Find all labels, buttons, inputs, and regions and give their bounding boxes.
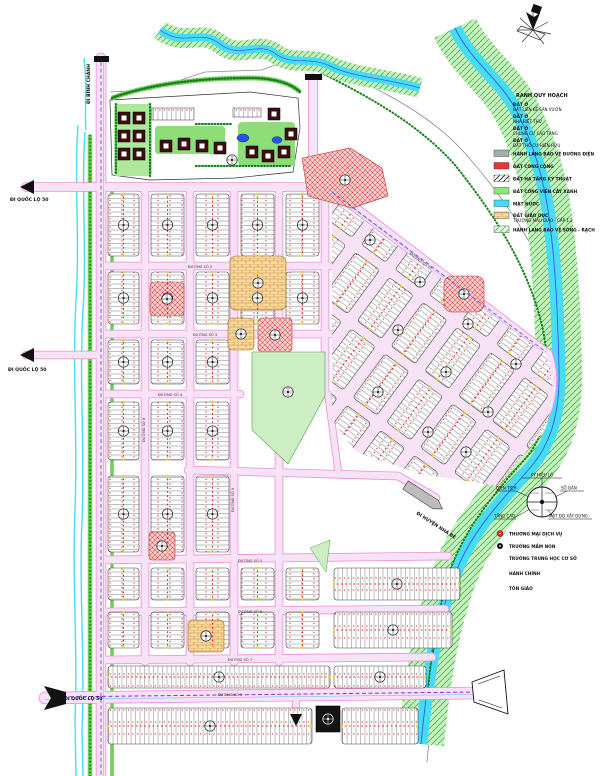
spine-tick bbox=[212, 401, 214, 404]
road-name: ĐƯỜNG SỐ 6 bbox=[238, 609, 263, 614]
spine-tick bbox=[257, 193, 259, 196]
apartment-building bbox=[160, 140, 172, 152]
spine-tick bbox=[107, 676, 109, 679]
lot-circle-symbol bbox=[207, 426, 217, 436]
lot-circle-symbol bbox=[253, 278, 263, 288]
spine-tick bbox=[516, 198, 519, 201]
park-parcel bbox=[252, 352, 325, 464]
spine-tick bbox=[302, 254, 304, 257]
lot-circle-symbol bbox=[162, 509, 172, 519]
spine-tick bbox=[167, 322, 169, 325]
lot-circle-symbol bbox=[207, 357, 217, 367]
legend-point-label: HÀNH CHÍNH bbox=[509, 569, 541, 577]
legend-swatch-education bbox=[494, 212, 509, 219]
lot-circle-symbol bbox=[207, 293, 217, 303]
lot-circle-symbol bbox=[415, 277, 425, 287]
parcel-spine bbox=[582, 286, 600, 325]
lot-circle-symbol bbox=[162, 220, 172, 230]
apartment-complex-siteplan bbox=[110, 78, 300, 180]
spine-tick bbox=[302, 322, 304, 325]
lot-circle-symbol bbox=[483, 407, 493, 417]
lot-circle-symbol bbox=[463, 319, 473, 329]
lot-symbol-label-bottom-left: TẦNG CAO bbox=[493, 514, 515, 519]
lot-circle-symbol bbox=[227, 155, 237, 165]
spine-tick bbox=[167, 382, 169, 385]
spine-tick bbox=[212, 550, 214, 553]
apartment-building bbox=[214, 142, 226, 154]
spine-tick bbox=[302, 567, 304, 570]
road-name: ĐƯỜNG SỐ 8 bbox=[141, 417, 146, 442]
spine-tick bbox=[476, 182, 479, 185]
spine-tick bbox=[302, 598, 304, 601]
spine-tick bbox=[410, 200, 413, 203]
spine-tick bbox=[257, 271, 259, 274]
spine-tick bbox=[374, 107, 377, 110]
spine-tick bbox=[581, 181, 584, 184]
planning-map-canvas: ĐI QUỐC LỘ 50 ĐI QUỐC LỘ 50 ĐI QUỐC LỘ 5… bbox=[0, 0, 600, 776]
apartment-building bbox=[133, 148, 145, 160]
parcel-spine bbox=[413, 161, 442, 200]
spine-tick bbox=[450, 629, 452, 632]
spine-tick bbox=[123, 550, 125, 553]
master-plan-drawing: ĐI QUỐC LỘ 50 ĐI QUỐC LỘ 50 ĐI QUỐC LỘ 5… bbox=[0, 0, 600, 776]
legend-res-sub: ĐẤT LIÊN KẾ SÂN VƯỜN bbox=[513, 106, 562, 112]
road-surface bbox=[100, 609, 445, 612]
spine-tick bbox=[123, 646, 125, 649]
parcel-block bbox=[108, 612, 139, 648]
legend-point-label: THƯƠNG MẠI DỊCH VỤ bbox=[509, 532, 563, 538]
spine-tick bbox=[123, 271, 125, 274]
lot-circle-symbol bbox=[118, 426, 128, 436]
spine-tick bbox=[167, 567, 169, 570]
spine-tick bbox=[167, 550, 169, 553]
spine-tick bbox=[480, 106, 483, 109]
spine-tick bbox=[509, 207, 512, 210]
lot-circle-symbol bbox=[441, 367, 451, 377]
parcel-block bbox=[286, 612, 319, 648]
legend-point-label: TRƯỜNG MẦM NON bbox=[509, 541, 556, 550]
lot-circle-symbol bbox=[365, 235, 375, 245]
spine-tick bbox=[341, 725, 343, 728]
spine-tick bbox=[512, 275, 515, 278]
lot-circle-symbol bbox=[373, 387, 383, 397]
spine-tick bbox=[257, 567, 259, 570]
road-name: ĐƯỜNG SỐ 1 bbox=[218, 692, 242, 697]
road-name: ĐƯỜNG SỐ 7 bbox=[228, 657, 252, 662]
lot-symbol-label-bottom-right: MẬT ĐỘ XÂY DỰNG bbox=[549, 514, 588, 519]
lot-circle-symbol bbox=[162, 294, 172, 304]
spine-tick bbox=[446, 81, 449, 84]
legend-title: RANH QUY HOẠCH bbox=[516, 93, 568, 99]
lot-circle-symbol bbox=[461, 447, 471, 457]
lot-circle-symbol bbox=[511, 359, 521, 369]
lot-circle-symbol bbox=[207, 509, 217, 519]
spine-tick bbox=[326, 455, 329, 458]
lot-circle-symbol bbox=[393, 325, 403, 335]
spine-tick bbox=[212, 322, 214, 325]
parcel-block bbox=[400, 150, 456, 211]
spine-tick bbox=[123, 322, 125, 325]
left-road-cap bbox=[94, 56, 109, 62]
apartment-building bbox=[246, 146, 258, 158]
spine-tick bbox=[415, 123, 418, 126]
parcel-spine bbox=[447, 186, 476, 225]
lot-circle-symbol bbox=[297, 220, 307, 230]
north-road-cap bbox=[305, 74, 322, 80]
spine-tick bbox=[123, 339, 125, 342]
legend-res-sub: ĐẤT THỔ CƯ HIỆN HỮU bbox=[513, 143, 560, 148]
lot-circle-symbol bbox=[118, 357, 128, 367]
apartment-building bbox=[133, 112, 145, 124]
spine-tick bbox=[167, 475, 169, 478]
spine-tick bbox=[302, 271, 304, 274]
spine-tick bbox=[167, 401, 169, 404]
lot-circle-symbol bbox=[118, 220, 128, 230]
spine-tick bbox=[381, 98, 384, 101]
spine-tick bbox=[302, 611, 304, 614]
apartment-building bbox=[285, 128, 297, 140]
lot-symbol-label-top: KÝ HIỆU LÔ bbox=[531, 473, 553, 478]
spine-tick bbox=[333, 629, 335, 632]
parcel-block bbox=[438, 98, 494, 159]
apartment-building bbox=[118, 112, 130, 124]
lot-circle-symbol bbox=[201, 631, 211, 641]
commerce-point-icon-center bbox=[499, 533, 501, 535]
lot-circle-symbol bbox=[207, 220, 217, 230]
parcel-block bbox=[241, 612, 274, 648]
spine-tick bbox=[448, 148, 451, 151]
spine-tick bbox=[123, 382, 125, 385]
spine-tick bbox=[412, 56, 415, 59]
spine-tick bbox=[478, 250, 481, 253]
spine-tick bbox=[212, 254, 214, 257]
spine-tick bbox=[416, 725, 418, 728]
spine-tick bbox=[167, 611, 169, 614]
spine-tick bbox=[212, 567, 214, 570]
road-name: ĐƯỜNG SỐ 3 bbox=[193, 332, 217, 337]
apartment-building bbox=[118, 148, 130, 160]
spine-tick bbox=[123, 567, 125, 570]
lot-circle-symbol bbox=[118, 509, 128, 519]
spine-tick bbox=[167, 271, 169, 274]
lot-circle-symbol bbox=[297, 293, 307, 303]
spine-tick bbox=[212, 598, 214, 601]
spine-tick bbox=[123, 401, 125, 404]
apartment-building bbox=[118, 130, 130, 142]
parcel-spine bbox=[380, 136, 409, 175]
spine-tick bbox=[212, 611, 214, 614]
lot-symbol-label-right: SỐ DÂN bbox=[561, 486, 577, 491]
lot-circle-symbol bbox=[236, 329, 246, 339]
lot-circle-symbol bbox=[118, 293, 128, 303]
legend-swatch-water bbox=[494, 200, 509, 207]
apartment-building bbox=[262, 150, 274, 162]
exit-label: ĐI QUỐC LỘ 50 bbox=[10, 195, 49, 203]
legend-swatch-infrastructure bbox=[494, 175, 509, 182]
spine-tick bbox=[458, 488, 461, 491]
legend-res-sub: CHUNG CƯ CAO TẦNG bbox=[513, 131, 558, 136]
spine-tick bbox=[123, 254, 125, 257]
apartment-building bbox=[278, 146, 290, 158]
legend-symbols: KÝ HIỆU LÔ DIỆN TÍCH SỐ DÂN TẦNG CAO MẬT… bbox=[493, 473, 592, 593]
spine-tick bbox=[107, 725, 109, 728]
spine-tick bbox=[302, 193, 304, 196]
lot-circle-symbol bbox=[340, 175, 350, 185]
spine-tick bbox=[167, 458, 169, 461]
spine-tick bbox=[359, 480, 362, 483]
lot-circle-symbol bbox=[252, 293, 262, 303]
legend-point-label: TÔN GIÁO bbox=[509, 585, 533, 592]
road-name: ĐƯỜNG SỐ 5 bbox=[238, 558, 262, 563]
spine-tick bbox=[584, 248, 587, 251]
spine-tick bbox=[328, 676, 330, 679]
spine-tick bbox=[424, 676, 426, 679]
spine-tick bbox=[444, 225, 447, 228]
lot-circle-symbol bbox=[205, 721, 215, 731]
spine-tick bbox=[123, 193, 125, 196]
spine-tick bbox=[123, 458, 125, 461]
spine-tick bbox=[212, 382, 214, 385]
exit-label: ĐI HUYỆN NHÀ BÈ bbox=[415, 509, 458, 541]
lot-circle-symbol bbox=[283, 387, 293, 397]
parcel-block bbox=[433, 175, 489, 236]
lot-circle-symbol bbox=[162, 426, 172, 436]
spine-tick bbox=[333, 583, 335, 586]
parcel-block bbox=[151, 612, 184, 648]
legend-swatch-label: MẶT NƯỚC bbox=[513, 201, 539, 208]
spine-tick bbox=[212, 271, 214, 274]
spine-tick bbox=[505, 284, 508, 287]
spine-tick bbox=[167, 646, 169, 649]
parcel-spine bbox=[418, 84, 447, 123]
spine-tick bbox=[526, 538, 529, 541]
parcel-spine bbox=[346, 111, 375, 150]
exit-label: ĐI QUỐC LỘ 50 bbox=[8, 365, 47, 373]
spine-tick bbox=[494, 580, 497, 583]
apartment-building bbox=[178, 138, 190, 150]
spine-tick bbox=[471, 259, 474, 262]
spine-tick bbox=[257, 598, 259, 601]
spine-tick bbox=[257, 254, 259, 257]
legend-swatch-river-corridor-hatch bbox=[494, 226, 509, 233]
spine-tick bbox=[123, 611, 125, 614]
lot-circle-symbol bbox=[270, 330, 280, 340]
lot-circle-symbol bbox=[162, 357, 172, 367]
north-arrow-icon bbox=[517, 4, 551, 44]
lot-circle-symbol bbox=[157, 541, 167, 551]
road-name: ĐƯỜNG SỐ 4 bbox=[158, 392, 183, 397]
spine-tick bbox=[257, 322, 259, 325]
spine-tick bbox=[458, 583, 460, 586]
road-name: ĐƯỜNG SỐ 9 bbox=[230, 487, 235, 512]
spine-tick bbox=[427, 530, 430, 533]
legend-swatch-park bbox=[494, 188, 509, 195]
lot-circle-symbol bbox=[392, 579, 402, 589]
spine-tick bbox=[257, 646, 259, 649]
lot-circle-symbol bbox=[214, 672, 224, 682]
spine-tick bbox=[333, 676, 335, 679]
road-name: ĐƯỜNG SỐ 2 bbox=[188, 264, 212, 269]
legend-point-label: TRƯỜNG TRUNG HỌC CƠ SỞ bbox=[509, 554, 577, 562]
spine-tick bbox=[577, 257, 580, 260]
spine-tick bbox=[167, 339, 169, 342]
spine-tick bbox=[167, 254, 169, 257]
spine-tick bbox=[212, 339, 214, 342]
lot-circle-symbol bbox=[323, 714, 333, 724]
spine-tick bbox=[167, 193, 169, 196]
spine-tick bbox=[302, 646, 304, 649]
legend-swatch-sublabel: TRƯỜNG MẪU GIÁO - CẤP 1,2 bbox=[512, 218, 573, 223]
road-surface bbox=[100, 657, 432, 660]
spine-tick bbox=[212, 458, 214, 461]
spine-tick bbox=[123, 598, 125, 601]
spine-tick bbox=[212, 475, 214, 478]
lot-circle-symbol bbox=[375, 672, 385, 682]
legend-res-sub: NHÀ BIỆT THỰ bbox=[513, 119, 543, 124]
spine-tick bbox=[212, 646, 214, 649]
spine-tick bbox=[212, 193, 214, 196]
apartment-building bbox=[268, 108, 280, 120]
spine-tick bbox=[442, 157, 445, 160]
spine-tick bbox=[393, 505, 396, 508]
spine-tick bbox=[167, 598, 169, 601]
spine-tick bbox=[404, 209, 407, 212]
kindergarten-point-icon-center bbox=[499, 545, 501, 547]
spine-tick bbox=[438, 234, 441, 237]
parcel-spine bbox=[574, 439, 600, 478]
spine-tick bbox=[571, 477, 574, 480]
east-trumpet-icon bbox=[472, 670, 508, 714]
lot-symbol-label-left: DIỆN TÍCH bbox=[496, 486, 516, 491]
apartment-building bbox=[196, 140, 208, 152]
lot-circle-symbol bbox=[388, 625, 398, 635]
spine-tick bbox=[123, 475, 125, 478]
left-canal bbox=[74, 58, 112, 776]
parcel-spine bbox=[451, 109, 480, 148]
lot-circle-symbol bbox=[252, 220, 262, 230]
west-exit-arrow-icon bbox=[20, 180, 34, 194]
spine-tick bbox=[408, 132, 411, 135]
spine-tick bbox=[310, 725, 312, 728]
west-exit-arrow-icon bbox=[20, 348, 34, 362]
legend-swatch-public bbox=[494, 163, 509, 170]
legend-swatch-power-corridor bbox=[494, 150, 509, 157]
apartment-building bbox=[133, 130, 145, 142]
lot-circle-symbol bbox=[423, 427, 433, 437]
